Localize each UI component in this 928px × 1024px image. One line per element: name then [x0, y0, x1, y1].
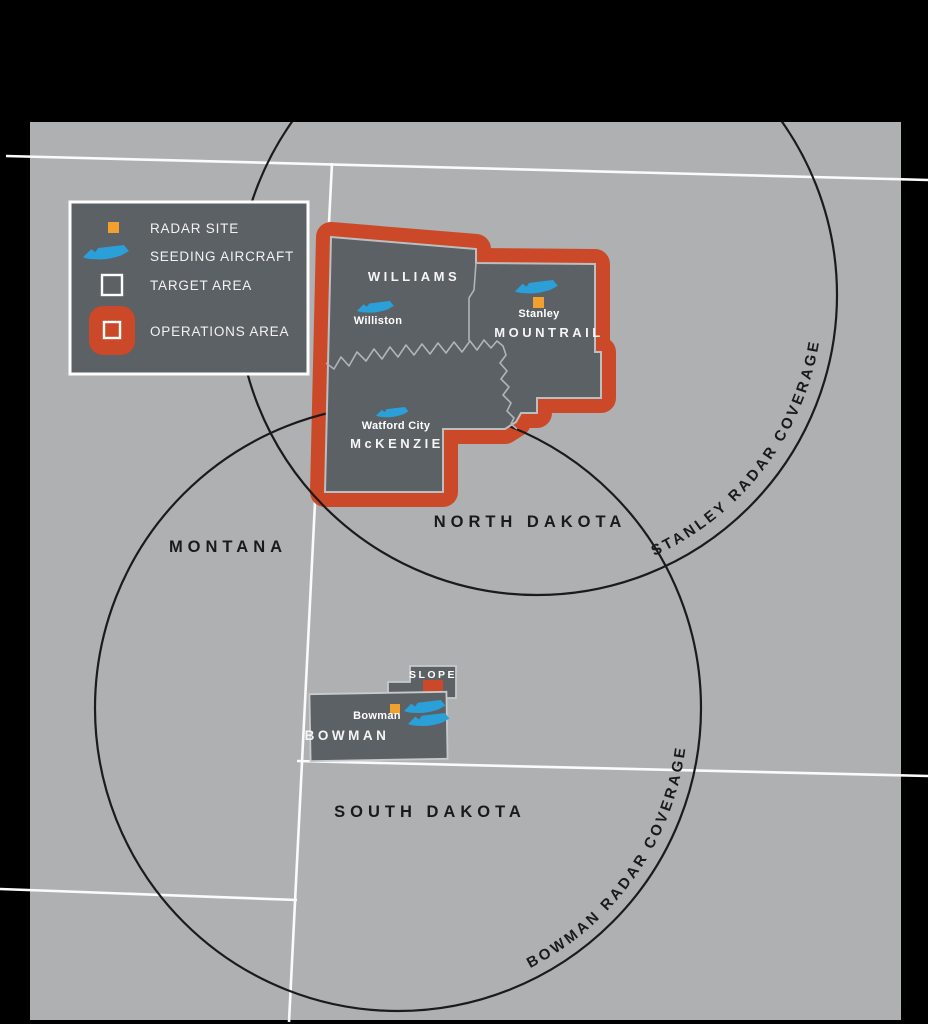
legend-operations-area-icon: [89, 306, 135, 355]
legend-seeding-aircraft-label: SEEDING AIRCRAFT: [150, 249, 294, 264]
city-label-watford-city: Watford City: [362, 420, 431, 432]
legend-radar-site-label: RADAR SITE: [150, 221, 239, 236]
city-label-stanley: Stanley: [518, 308, 560, 320]
state-label-montana: MONTANA: [169, 538, 287, 556]
county-label-bowman: BOWMAN: [305, 728, 390, 743]
legend-operations-area-label: OPERATIONS AREA: [150, 324, 289, 339]
state-label-south-dakota: SOUTH DAKOTA: [334, 803, 526, 821]
legend-radar-site-icon: [108, 222, 119, 233]
state-label-north-dakota: NORTH DAKOTA: [434, 513, 627, 531]
county-label-slope: SLOPE: [409, 669, 457, 681]
radar-site-marker-stanley: [533, 297, 544, 308]
city-label-williston: Williston: [354, 315, 402, 327]
legend-target-area-label: TARGET AREA: [150, 278, 252, 293]
weather-modification-map: WILLIAMS MOUNTRAIL McKENZIE BOWMAN SLOPE…: [0, 0, 928, 1024]
legend: RADAR SITE SEEDING AIRCRAFT TARGET AREA …: [70, 202, 308, 374]
city-label-bowman: Bowman: [353, 710, 401, 722]
county-label-mckenzie: McKENZIE: [350, 436, 444, 451]
county-label-williams: WILLIAMS: [368, 269, 460, 284]
county-label-mountrail: MOUNTRAIL: [494, 325, 604, 340]
